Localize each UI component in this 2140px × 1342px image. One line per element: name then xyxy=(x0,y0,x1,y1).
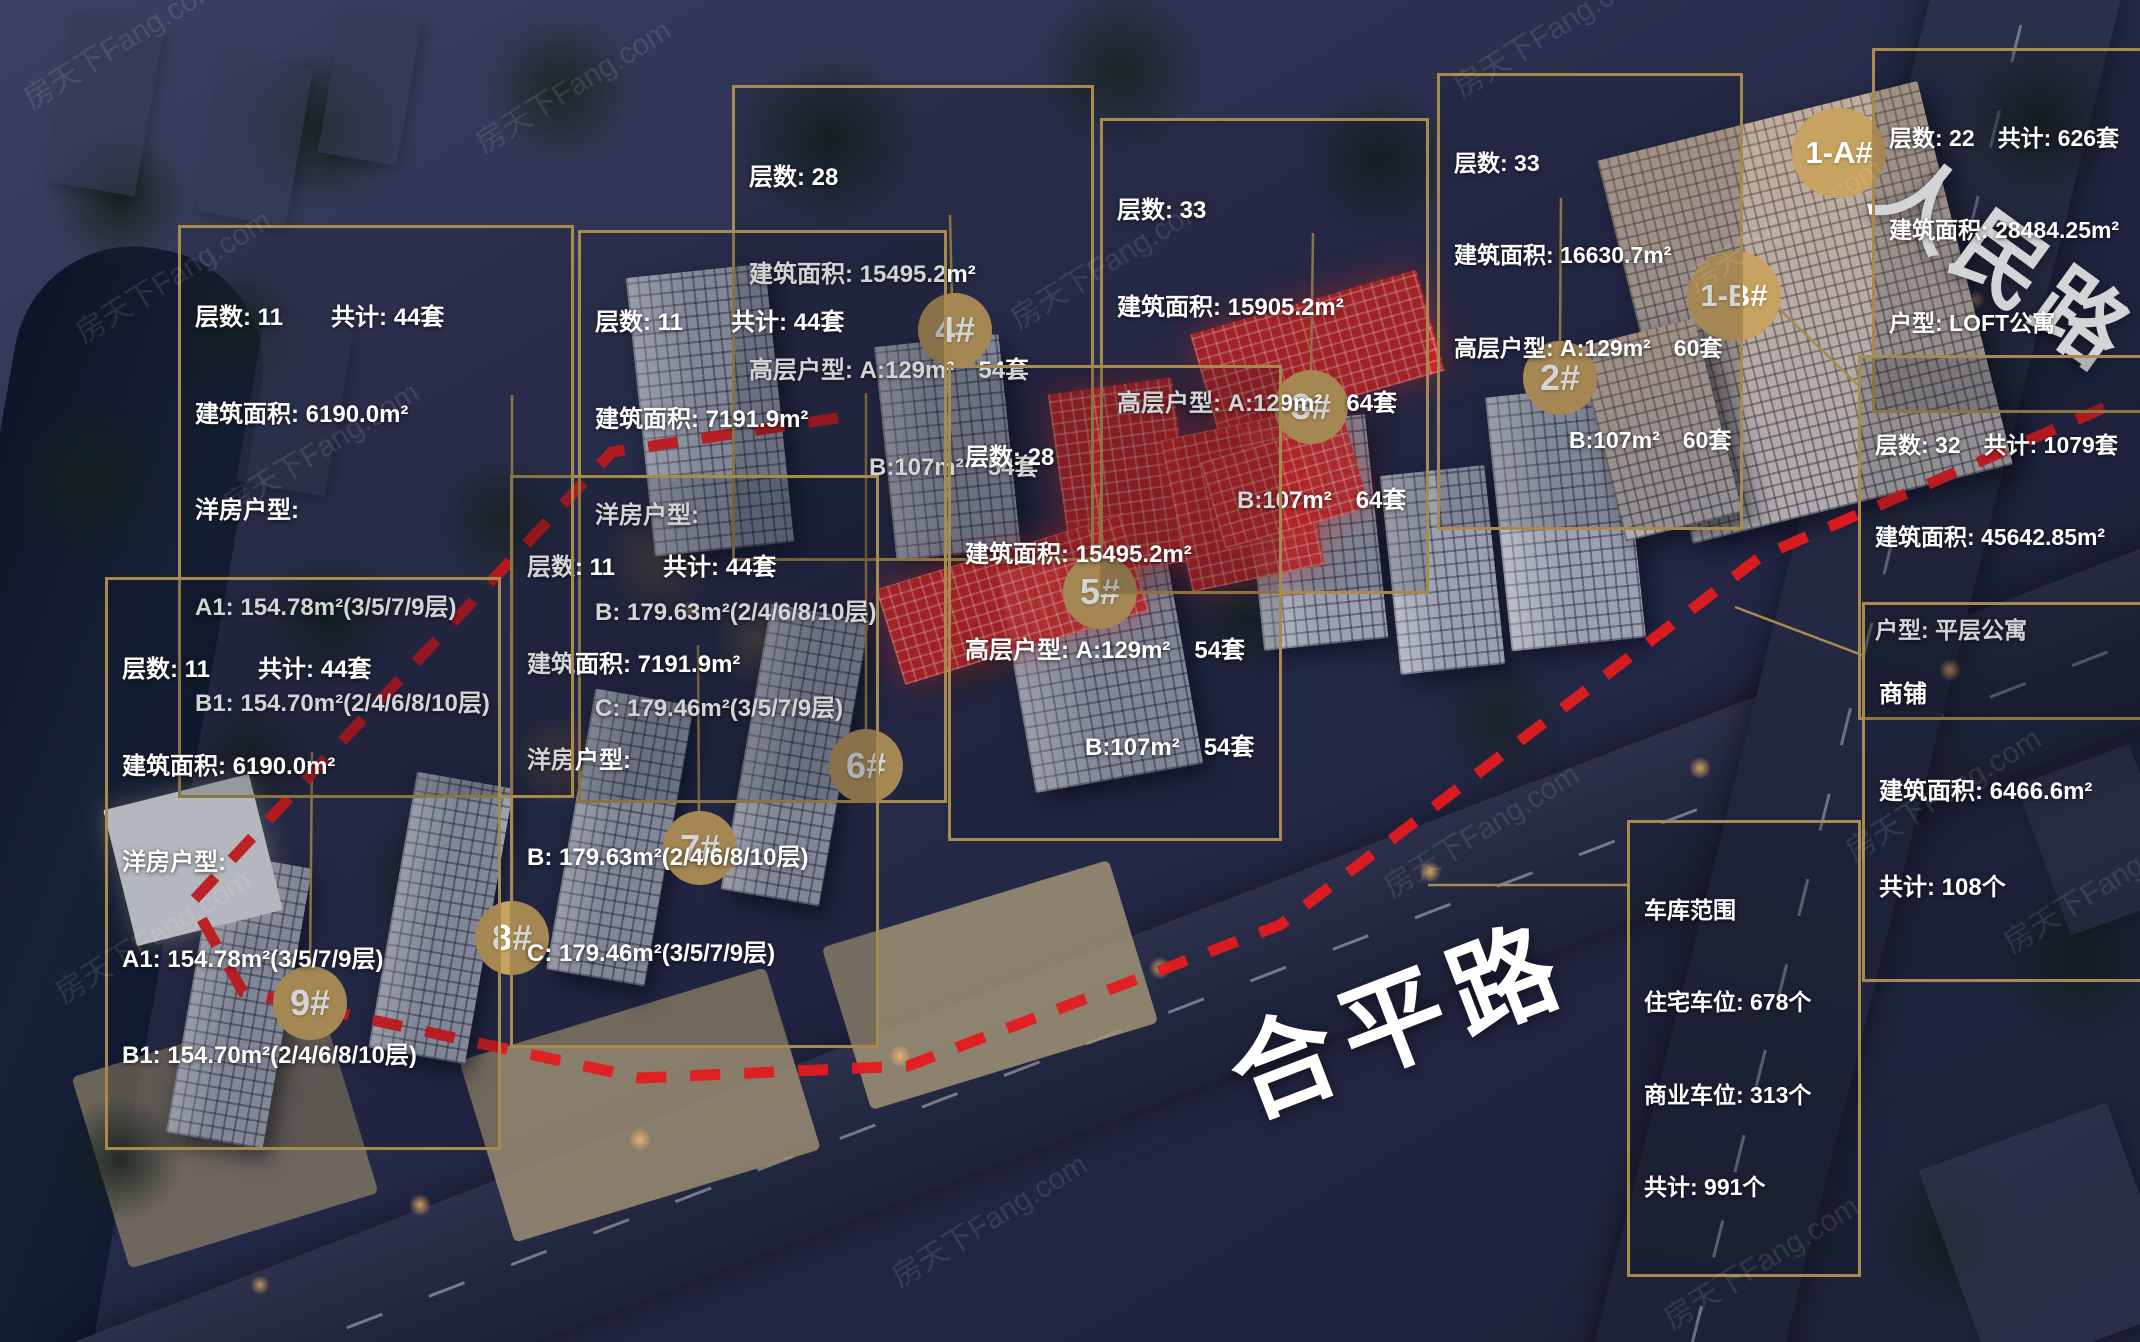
info-line: 住宅车位: 678个 xyxy=(1644,987,1844,1018)
info-line: 洋房户型: xyxy=(122,847,484,879)
info-line: 商铺 xyxy=(1879,679,2140,711)
info-line: 层数: 22 共计: 626套 xyxy=(1889,123,2140,154)
info-box-building-9: 层数: 11 共计: 44套 建筑面积: 6190.0m² 洋房户型: A1: … xyxy=(105,577,501,1150)
info-line: 层数: 28 xyxy=(749,162,1077,194)
info-line: 层数: 11 共计: 44套 xyxy=(195,302,557,334)
info-line: 层数: 33 xyxy=(1454,148,1726,179)
info-line: B1: 154.70m²(2/4/6/8/10层) xyxy=(122,1040,484,1072)
info-line: 建筑面积: 7191.9m² xyxy=(595,404,930,436)
info-line: 建筑面积: 45642.85m² xyxy=(1875,522,2140,553)
info-line: 共计: 991个 xyxy=(1644,1172,1844,1203)
info-line: 层数: 28 xyxy=(965,442,1265,474)
info-line: B: 179.63m²(2/4/6/8/10层) xyxy=(527,842,862,874)
info-line: 车库范围 xyxy=(1644,895,1844,926)
info-box-building-2: 层数: 33 建筑面积: 16630.7m² 高层户型: A:129m² 60套… xyxy=(1437,73,1743,530)
info-box-building-5: 层数: 28 建筑面积: 15495.2m² 高层户型: A:129m² 54套… xyxy=(948,365,1282,841)
info-line: C: 179.46m²(3/5/7/9层) xyxy=(527,938,862,970)
info-line: 层数: 11 共计: 44套 xyxy=(527,552,862,584)
info-line: A1: 154.78m²(3/5/7/9层) xyxy=(122,944,484,976)
info-line: 建筑面积: 28484.25m² xyxy=(1889,215,2140,246)
info-line: B:107m² 60套 xyxy=(1454,425,1726,456)
info-line: 建筑面积: 15905.2m² xyxy=(1117,292,1412,324)
info-line: 高层户型: A:129m² 54套 xyxy=(965,635,1265,667)
info-line: 层数: 11 共计: 44套 xyxy=(595,307,930,339)
site-plan: 人民路 合平路 1-A# 1-B# 2# 3# 4# 5# 6# 7# 8# 9… xyxy=(0,0,2140,1342)
info-line: 高层户型: A:129m² 60套 xyxy=(1454,333,1726,364)
info-line: 层数: 32 共计: 1079套 xyxy=(1875,430,2140,461)
info-line: 建筑面积: 6190.0m² xyxy=(122,751,484,783)
info-line: 户型: LOFT公寓 xyxy=(1889,308,2140,339)
info-line: 层数: 11 共计: 44套 xyxy=(122,654,484,686)
info-line: 建筑面积: 7191.9m² xyxy=(527,649,862,681)
info-line: 洋房户型: xyxy=(527,745,862,777)
info-line: 建筑面积: 15495.2m² xyxy=(965,539,1265,571)
info-line: 商业车位: 313个 xyxy=(1644,1080,1844,1111)
info-line: B:107m² 54套 xyxy=(965,732,1265,764)
